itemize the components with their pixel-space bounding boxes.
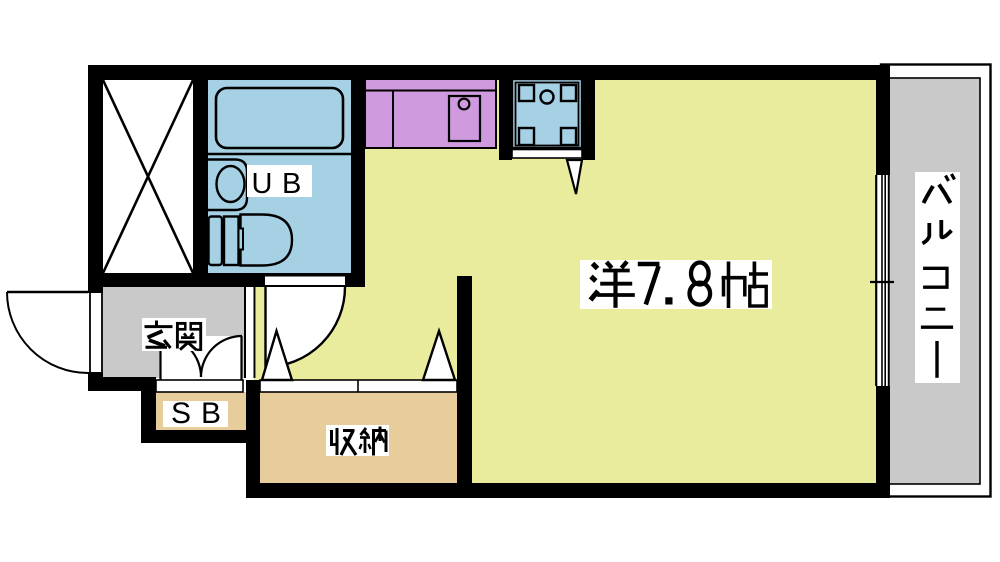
svg-text:UB: UB: [252, 168, 311, 200]
svg-text:SB: SB: [171, 397, 231, 430]
